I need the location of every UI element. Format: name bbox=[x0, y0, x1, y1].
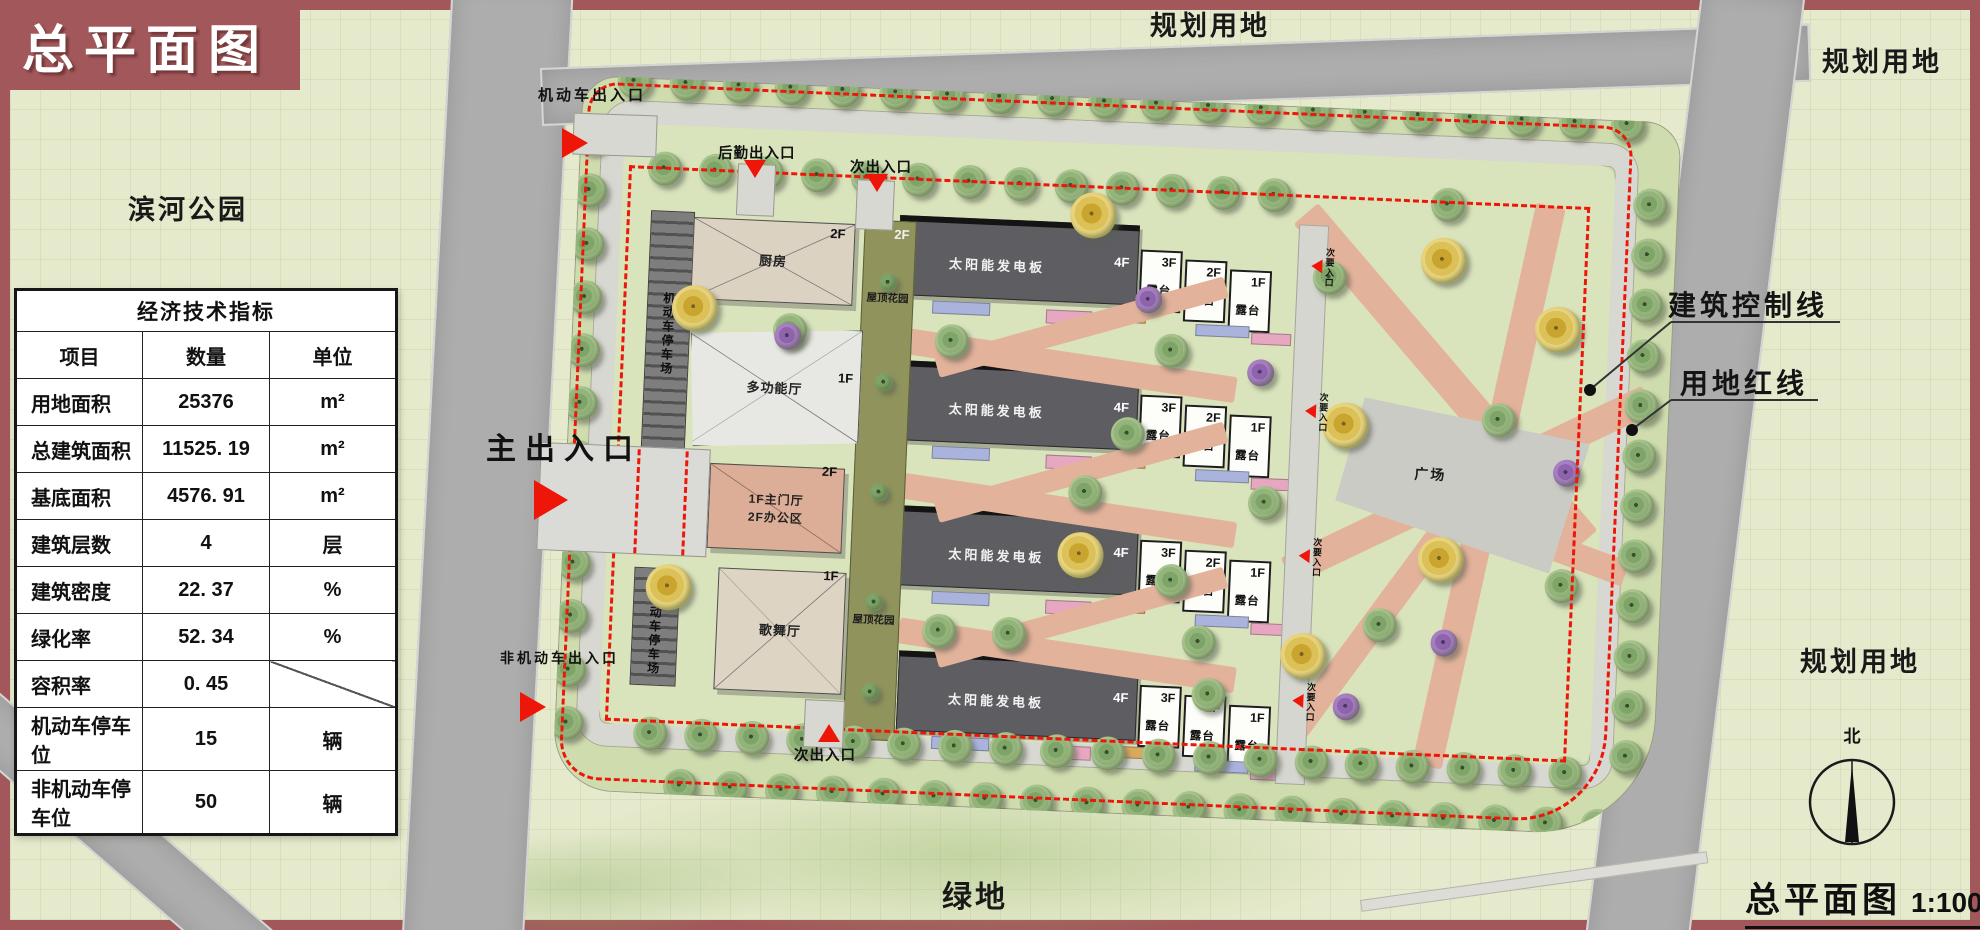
row-unit: m² bbox=[270, 473, 397, 520]
row-unit-empty bbox=[270, 661, 397, 708]
solar-panel-label: 太阳能发电板 bbox=[948, 398, 1045, 421]
facade-accent bbox=[931, 591, 990, 607]
terrace-floor-tag: 1F bbox=[1250, 711, 1265, 726]
facade-accent bbox=[932, 300, 991, 316]
row-qty: 4 bbox=[143, 520, 270, 567]
table-row: 用地面积25376m² bbox=[16, 379, 397, 426]
lobby-floor-tag: 2F bbox=[822, 464, 838, 480]
row-qty: 0. 45 bbox=[143, 661, 270, 708]
terrace-floor-tag: 3F bbox=[1161, 401, 1176, 416]
compass-icon bbox=[1804, 742, 1900, 852]
caption-scale: 1:1000 bbox=[1911, 887, 1980, 918]
binhe-park-label: 滨河公园 bbox=[128, 188, 248, 227]
facade-accent bbox=[1195, 469, 1249, 483]
red-dash-segment bbox=[681, 451, 689, 555]
row-unit: m² bbox=[270, 379, 397, 426]
row-unit: % bbox=[270, 614, 397, 661]
building-control-line-label: 建筑控制线 bbox=[1668, 284, 1828, 324]
terrace-floor-tag: 1F bbox=[1251, 275, 1266, 290]
row-qty: 15 bbox=[143, 708, 270, 771]
planning-land-right-label: 规划用地 bbox=[1800, 640, 1920, 679]
secondary-top-entrance-arrow bbox=[866, 174, 888, 192]
non-motor-entrance-arrow bbox=[520, 692, 546, 722]
terrace-floor-tag: 1F bbox=[1250, 566, 1265, 581]
terrace-floor-tag: 1F bbox=[1250, 420, 1265, 435]
terrace-label: 露台 bbox=[1235, 302, 1261, 319]
site-plan-area: 广场 机动车停车场 非机动车停车场 2F 屋顶花园 屋顶花园 厨房 2F 多功能… bbox=[552, 75, 1682, 837]
main-entrance-arrow bbox=[534, 480, 568, 520]
terrace-label: 露台 bbox=[1235, 447, 1261, 464]
row-item: 用地面积 bbox=[16, 379, 143, 426]
row-item: 建筑密度 bbox=[16, 567, 143, 614]
solar-panel-label: 太阳能发电板 bbox=[948, 689, 1045, 712]
row-item: 基底面积 bbox=[16, 473, 143, 520]
row-qty: 11525. 19 bbox=[143, 426, 270, 473]
lobby-label-line2: 2F办公区 bbox=[748, 507, 804, 527]
indicator-table-title: 经济技术指标 bbox=[16, 290, 397, 332]
caption-title: 总平面图 bbox=[1745, 881, 1901, 920]
side-entrance-arrow bbox=[1305, 404, 1317, 418]
roof-garden-strip-floor-tag: 2F bbox=[894, 227, 910, 243]
sheet-title: 总平面图 bbox=[0, 0, 300, 90]
caption-rule bbox=[1745, 926, 1980, 929]
solar-panel-label: 太阳能发电板 bbox=[949, 253, 1046, 276]
multi-hall-floor-tag: 1F bbox=[838, 370, 854, 386]
north-compass: 北 bbox=[1772, 722, 1932, 872]
table-row: 容积率0. 45 bbox=[16, 661, 397, 708]
row-qty: 22. 37 bbox=[143, 567, 270, 614]
non-motor-entrance-label: 非机动车出入口 bbox=[500, 648, 619, 668]
roof-floor-tag: 4F bbox=[1113, 690, 1129, 706]
roof-floor-tag: 4F bbox=[1113, 545, 1129, 561]
row-item: 非机动车停车位 bbox=[16, 771, 143, 835]
terrace-label: 露台 bbox=[1145, 717, 1171, 734]
row-qty: 50 bbox=[143, 771, 270, 835]
terrace-floor-tag: 3F bbox=[1161, 546, 1176, 561]
table-row: 非机动车停车位50辆 bbox=[16, 771, 397, 835]
row-unit: 层 bbox=[270, 520, 397, 567]
side-entrance-arrow bbox=[1311, 259, 1323, 273]
main-entrance-label: 主出入口 bbox=[486, 424, 642, 468]
row-item: 绿化率 bbox=[16, 614, 143, 661]
planning-land-top-right-label: 规划用地 bbox=[1822, 40, 1942, 79]
row-qty: 25376 bbox=[143, 379, 270, 426]
roof-garden-label-top: 屋顶花园 bbox=[859, 289, 916, 306]
building-dance-hall: 歌舞厅 bbox=[713, 567, 846, 694]
roof-floor-tag: 4F bbox=[1114, 399, 1130, 415]
row-item: 总建筑面积 bbox=[16, 426, 143, 473]
row-qty: 4576. 91 bbox=[143, 473, 270, 520]
site-plan-canvas: 广场 机动车停车场 非机动车停车场 2F 屋顶花园 屋顶花园 厨房 2F 多功能… bbox=[0, 0, 1980, 930]
lobby-label-line1: 1F主门厅 bbox=[748, 489, 804, 509]
solar-panel-label: 太阳能发电板 bbox=[948, 543, 1045, 566]
drawing-caption: 总平面图1:1000 bbox=[1745, 872, 1980, 930]
kitchen-label: 厨房 bbox=[759, 251, 788, 272]
row-item: 建筑层数 bbox=[16, 520, 143, 567]
facade-accent bbox=[1195, 324, 1249, 338]
motor-entrance-label: 机动车出入口 bbox=[538, 84, 646, 105]
terrace-floor-tag: 3F bbox=[1160, 691, 1175, 706]
secondary-bottom-entrance-arrow bbox=[818, 724, 840, 742]
side-entrance-label: 次要入口 bbox=[1315, 392, 1331, 451]
planning-land-top-label: 规划用地 bbox=[1150, 4, 1270, 43]
row-unit: 辆 bbox=[270, 708, 397, 771]
logistics-entrance-arrow bbox=[744, 160, 766, 178]
col-header-item: 项目 bbox=[16, 332, 143, 379]
col-header-qty: 数量 bbox=[143, 332, 270, 379]
terrace-label: 露台 bbox=[1234, 592, 1260, 609]
terrace-floor-tag: 3F bbox=[1161, 255, 1176, 270]
table-row: 机动车停车位15辆 bbox=[16, 708, 397, 771]
table-row: 绿化率52. 34% bbox=[16, 614, 397, 661]
row-unit: m² bbox=[270, 426, 397, 473]
terrace-box: 1F露台 bbox=[1227, 269, 1272, 333]
row-qty: 52. 34 bbox=[143, 614, 270, 661]
table-row: 建筑层数4层 bbox=[16, 520, 397, 567]
side-entrance-label: 次要入口 bbox=[1322, 247, 1338, 306]
table-row: 建筑密度22. 37% bbox=[16, 567, 397, 614]
row-unit: 辆 bbox=[270, 771, 397, 835]
dance-hall-floor-tag: 1F bbox=[823, 568, 839, 584]
sheet-title-text: 总平面图 bbox=[22, 8, 270, 83]
facade-accent bbox=[1251, 332, 1291, 346]
side-entrance-label: 次要入口 bbox=[1309, 537, 1325, 596]
table-row: 基底面积4576. 91m² bbox=[16, 473, 397, 520]
side-entrance-label: 次要入口 bbox=[1303, 682, 1319, 741]
row-item: 机动车停车位 bbox=[16, 708, 143, 771]
kitchen-floor-tag: 2F bbox=[830, 226, 846, 242]
green-space-label: 绿地 bbox=[942, 872, 1008, 916]
plaza-label: 广场 bbox=[1414, 464, 1447, 485]
terrace-box: 1F露台 bbox=[1227, 415, 1272, 479]
table-row: 总建筑面积11525. 19m² bbox=[16, 426, 397, 473]
building-multi-hall: 多功能厅 bbox=[686, 323, 863, 453]
side-entrance-arrow bbox=[1292, 694, 1304, 708]
row-item: 容积率 bbox=[16, 661, 143, 708]
facade-accent bbox=[932, 446, 991, 462]
secondary-bottom-entrance-label: 次出入口 bbox=[794, 744, 856, 765]
roof-floor-tag: 4F bbox=[1114, 254, 1130, 270]
dance-hall-label: 歌舞厅 bbox=[759, 620, 802, 641]
terrace-box: 1F露台 bbox=[1227, 560, 1272, 624]
side-entrance-arrow bbox=[1298, 549, 1310, 563]
multi-hall-label: 多功能厅 bbox=[746, 377, 803, 399]
col-header-unit: 单位 bbox=[270, 332, 397, 379]
roof-garden-label-bottom: 屋顶花园 bbox=[845, 611, 902, 628]
motor-entrance-arrow bbox=[562, 128, 588, 158]
row-unit: % bbox=[270, 567, 397, 614]
indicator-table: 经济技术指标 项目 数量 单位 用地面积25376m² 总建筑面积11525. … bbox=[14, 288, 398, 836]
land-red-line-label: 用地红线 bbox=[1680, 362, 1808, 402]
